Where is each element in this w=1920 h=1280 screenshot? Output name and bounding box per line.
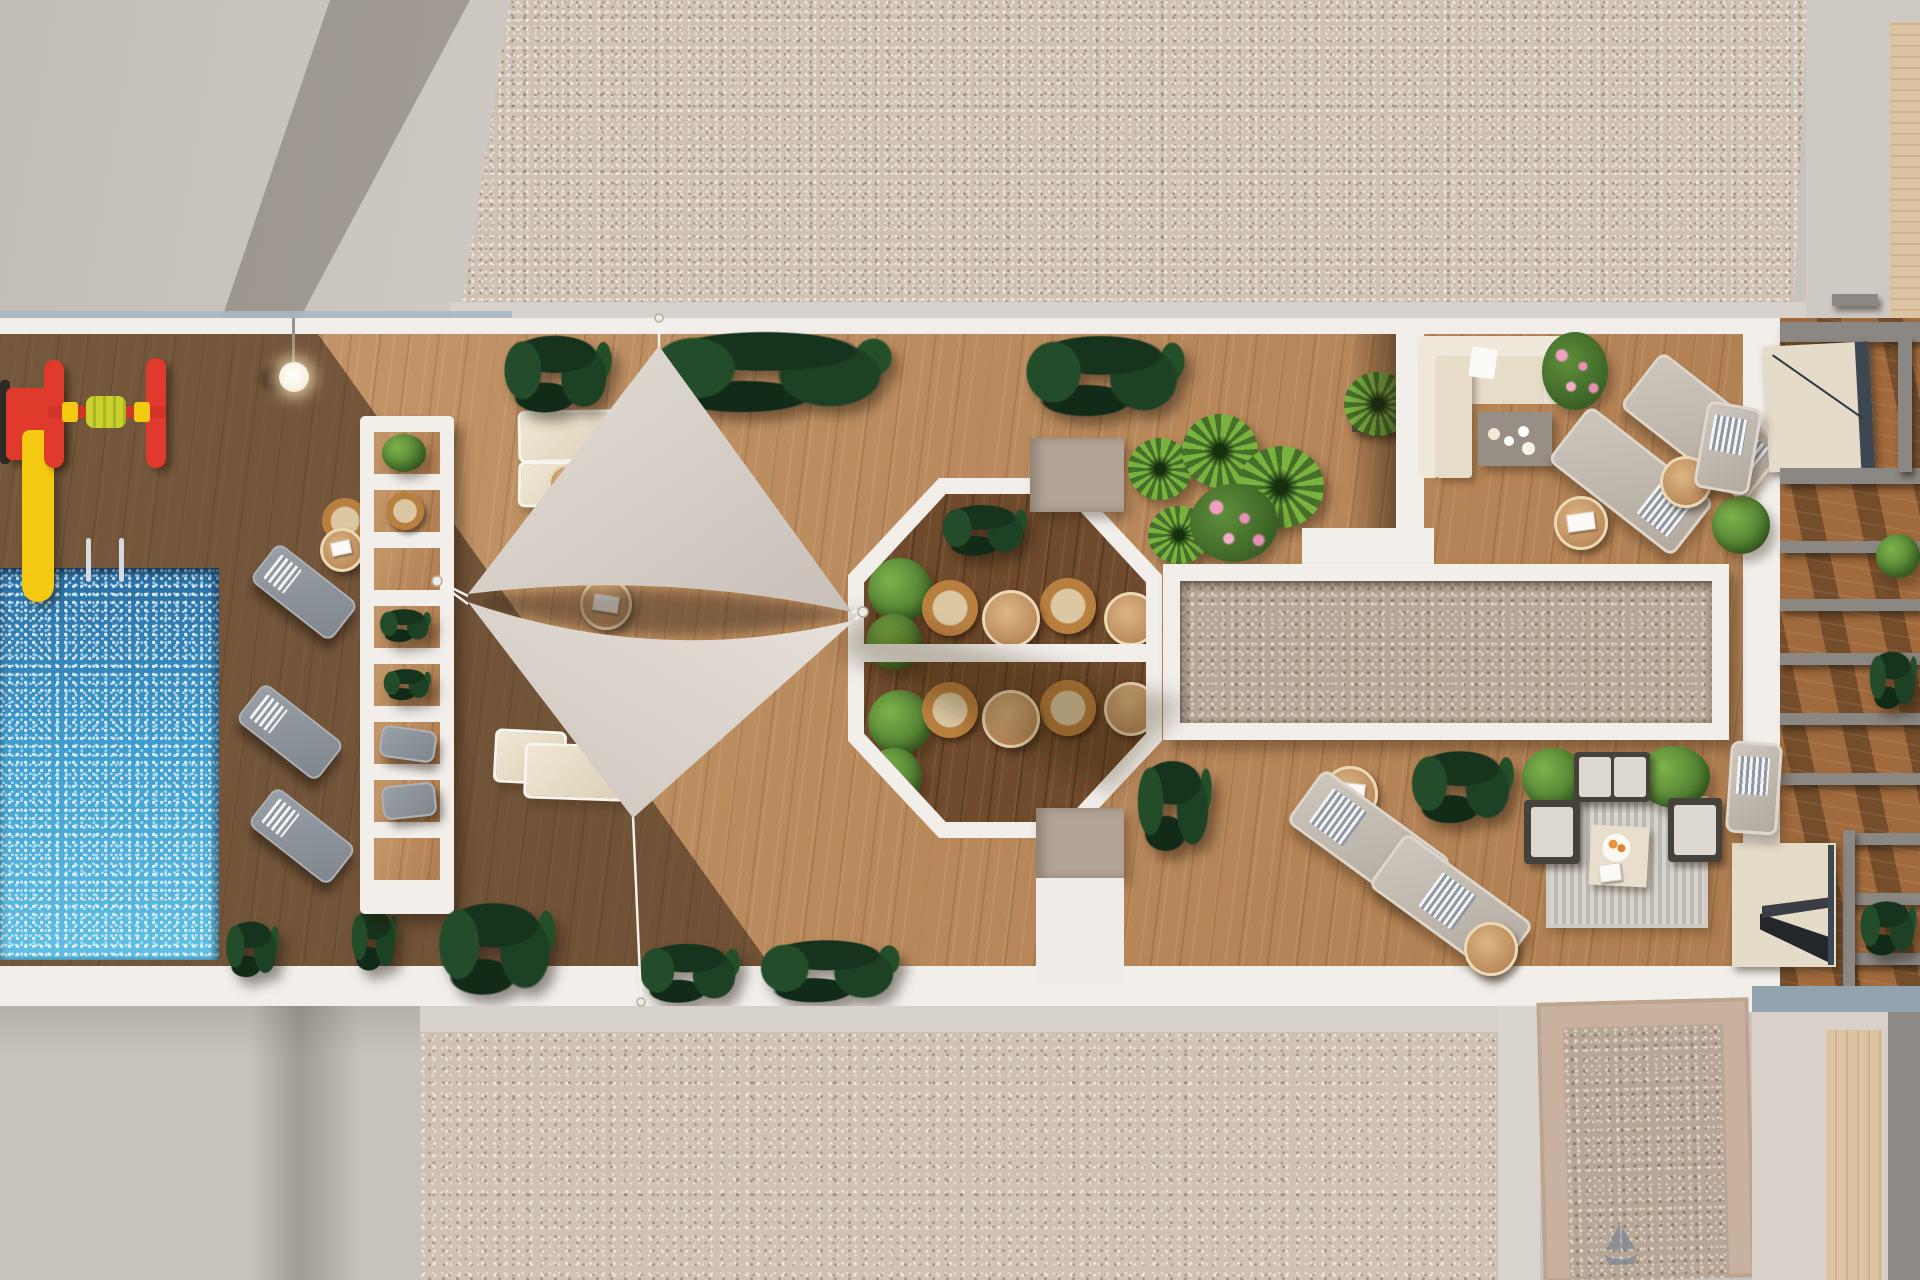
- shade-sail-top: [468, 346, 852, 612]
- sail-cast-shadow: [838, 612, 1185, 792]
- rooftop-terrace-render: Aerial 3D render of a rooftop terrace wi…: [0, 0, 1920, 1280]
- shade-sails-layer: [0, 0, 1920, 1280]
